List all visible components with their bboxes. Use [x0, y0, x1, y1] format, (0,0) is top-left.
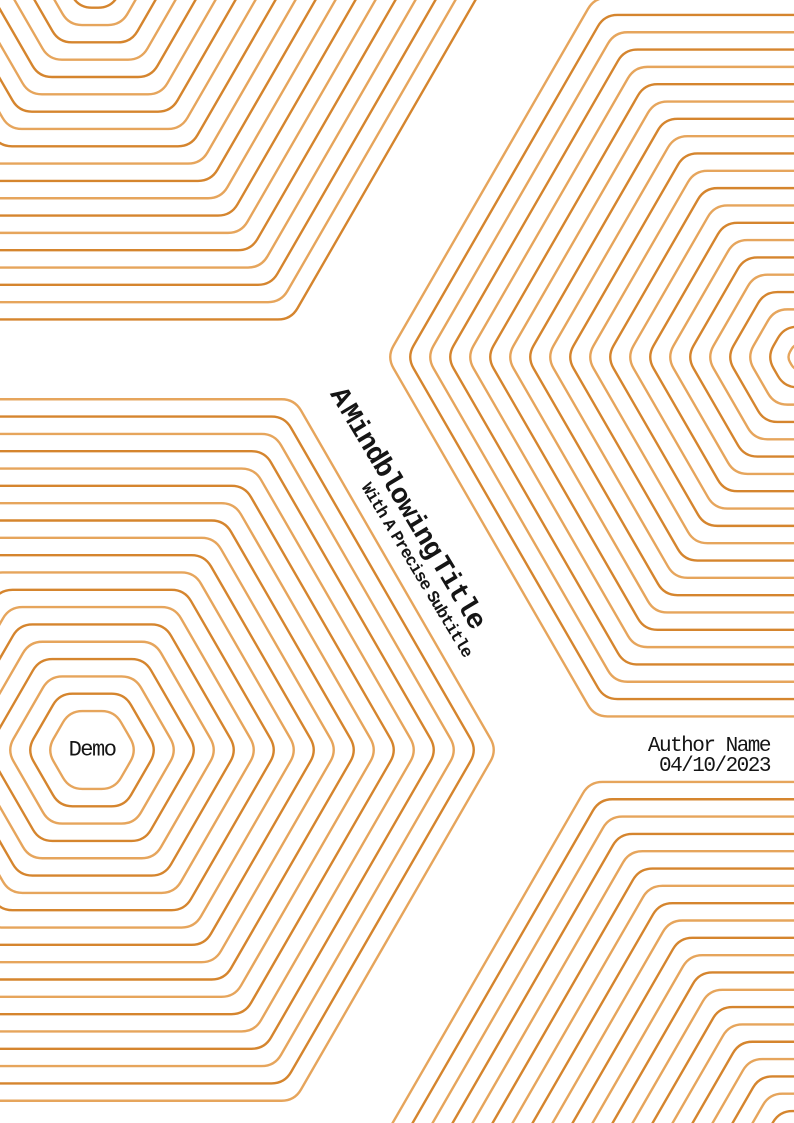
hexagon-ring: [6, 0, 184, 60]
hexagon-ring: [550, 136, 794, 578]
publication-date: 04/10/2023: [648, 757, 770, 777]
hexagon-ring: [789, 344, 794, 370]
title-page: A Mindblowing Title With A Precise Subti…: [0, 0, 794, 1123]
hexagon-ring: [0, 555, 314, 945]
hexagon-ring: [0, 451, 434, 1049]
hexagon-ring: [0, 607, 254, 893]
hexagon-ring: [0, 469, 414, 1032]
hexagon-ring: [490, 84, 794, 630]
hexagon-ring: [760, 1111, 794, 1123]
hexagon-ring: [0, 0, 304, 164]
hexagon-ring: [570, 153, 794, 560]
hexagon-ring: [730, 292, 794, 422]
hexagon-ring: [770, 327, 794, 388]
hexagon-ring: [66, 0, 124, 8]
hexagon-ring: [620, 990, 794, 1123]
hexagon-ring: [540, 921, 794, 1123]
author-name: Author Name: [648, 737, 770, 757]
hexagon-ring: [710, 275, 794, 440]
hexagon-ring: [0, 624, 234, 875]
hexagon-ring: [26, 0, 164, 42]
hexagon-center-label: Demo: [69, 738, 116, 763]
hexagon-ring: [610, 188, 794, 526]
hexagon-ring: [0, 0, 204, 77]
hexagon-ring: [690, 257, 794, 456]
hexagon-ring: [46, 0, 144, 25]
hexagon-ring: [450, 50, 794, 665]
hexagon-ring: [0, 0, 464, 302]
hexagon-ring: [430, 32, 794, 682]
hexagon-ring: [590, 171, 794, 543]
hexagon-pattern-background: [0, 0, 794, 1123]
hexagon-ring: [560, 938, 794, 1123]
hexagon-group-top-left: [0, 0, 484, 319]
author-block: Author Name 04/10/2023: [648, 737, 770, 777]
hexagon-ring: [0, 572, 294, 927]
hexagon-group-bottom-right: [380, 782, 794, 1123]
